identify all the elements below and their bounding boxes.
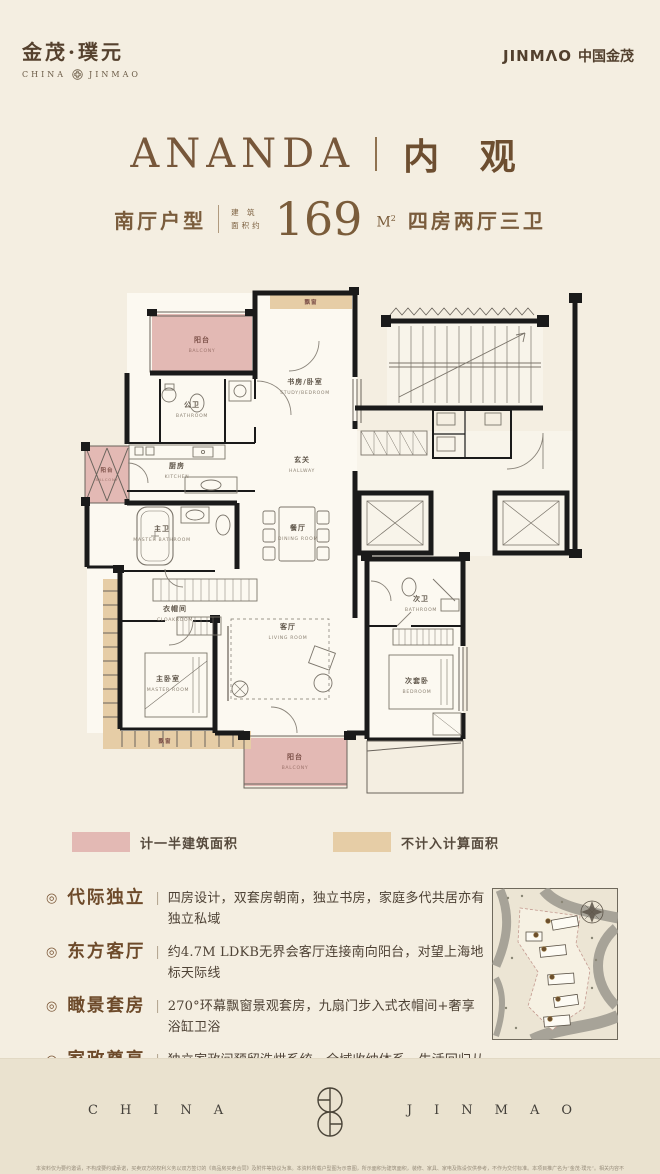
title-divider: [375, 137, 377, 171]
area-unit: M2: [376, 214, 395, 231]
footer-jinmao-text: JINMAO: [407, 1103, 594, 1118]
legend: 计一半建筑面积 不计入计算面积: [72, 832, 499, 852]
page-title-cn: 内 观: [397, 128, 530, 180]
bullseye-bullet-icon: ◎: [46, 942, 57, 963]
brand-right-logotype: JINMΛO: [503, 47, 572, 65]
room-label-en: CLOAKROOM: [157, 617, 193, 623]
area-prefix-line1: 建 筑: [231, 207, 263, 218]
brand-left: 金茂·璞元 CHINA JINMAO: [22, 36, 141, 80]
room-label: 阳台: [287, 752, 303, 761]
brand-left-en-china: CHINA: [22, 70, 66, 79]
balcony-left-area: [85, 446, 129, 503]
room-label-en: BALCONY: [282, 765, 309, 771]
feature-desc: 四房设计，双套房朝南，独立书房，家庭多代共居亦有独立私域: [168, 888, 486, 930]
footer: CHINA JINMAO 本资料仅为要约邀请，不构成要约或承诺，买卖双方的权利义…: [0, 1058, 660, 1174]
jinmao-monogram-icon: [310, 1081, 350, 1147]
feature-row: ◎ 瞰景套房 | 270°环幕飘窗景观套房，九扇门步入式衣帽间+奢享浴缸卫浴: [46, 996, 486, 1038]
room-label: 阳台: [194, 335, 210, 344]
legend-item-half-area: 计一半建筑面积: [72, 832, 238, 852]
room-label: 主卧室: [156, 674, 180, 683]
room-label: 公卫: [184, 401, 200, 409]
legend-label: 不计入计算面积: [401, 833, 499, 852]
room-label-en: LIVING ROOM: [269, 635, 308, 641]
room-label-en: MASTER BATHROOM: [133, 537, 190, 543]
room-label: 餐厅: [289, 523, 306, 532]
room-label-en: HALLWAY: [289, 468, 315, 474]
feature-desc: 约4.7M LDKB无界会客厅连接南向阳台，对望上海地标天际线: [168, 942, 486, 984]
room-label: 飘窗: [158, 737, 171, 745]
feature-row: ◎ 东方客厅 | 约4.7M LDKB无界会客厅连接南向阳台，对望上海地标天际线: [46, 942, 486, 984]
room-label-en: MASTER ROOM: [147, 687, 189, 693]
room-label: 飘窗: [304, 298, 317, 306]
room-label: 衣帽间: [163, 604, 187, 613]
room-label: 书房/卧室: [287, 377, 323, 386]
disclaimer-text: 本资料仅为要约邀请，不构成要约或承诺，买卖双方的权利义务以双方签订的《商品房买卖…: [36, 1165, 624, 1174]
room-label: 次卫: [413, 594, 429, 603]
footer-china-text: CHINA: [88, 1103, 245, 1118]
area-prefix: 建 筑 面积约: [231, 207, 263, 231]
feature-title: 东方客厅: [67, 942, 145, 963]
feature-divider: |: [155, 942, 159, 964]
subtitle-divider: [218, 205, 219, 233]
room-label-en: BALCONY: [95, 477, 118, 482]
area-value: 169: [275, 196, 363, 242]
page-title-en: ANANDA: [130, 131, 355, 177]
area-unit-sup: 2: [391, 214, 396, 223]
legend-label: 计一半建筑面积: [140, 833, 238, 852]
feature-desc: 270°环幕飘窗景观套房，九扇门步入式衣帽间+奢享浴缸卫浴: [168, 996, 486, 1038]
title-row: ANANDA 内 观: [0, 128, 660, 180]
brand-left-en: CHINA JINMAO: [22, 69, 141, 80]
brand-right-cn: 中国金茂: [578, 46, 634, 66]
footer-logos: CHINA JINMAO: [0, 1085, 660, 1147]
room-label-en: DINING ROOM: [278, 536, 318, 542]
feature-title: 瞰景套房: [67, 996, 145, 1017]
site-map: [492, 888, 618, 1044]
area-prefix-line2: 面积约: [231, 220, 263, 231]
room-label-en: BEDROOM: [403, 689, 432, 695]
brand-left-en-jinmao: JINMAO: [89, 70, 141, 79]
room-label-en: BALCONY: [189, 348, 216, 354]
feature-row: ◎ 代际独立 | 四房设计，双套房朝南，独立书房，家庭多代共居亦有独立私域: [46, 888, 486, 930]
room-label-en: BATHROOM: [405, 607, 437, 613]
compass-rose-icon: [581, 901, 603, 923]
subtitle-row: 南厅户型 建 筑 面积约 169 M2 四房两厅三卫: [0, 196, 660, 242]
balcony-bottom-area: [244, 738, 347, 786]
floor-plan-svg: 阳台 BALCONY 飘窗 书房/卧室 STUDY/BEDROOM 公卫 BAT…: [65, 281, 595, 826]
room-label: 阳台: [100, 466, 113, 474]
feature-divider: |: [155, 996, 159, 1018]
brand-emblem-icon: [72, 69, 83, 80]
bullseye-bullet-icon: ◎: [46, 888, 57, 909]
floor-plan: 阳台 BALCONY 飘窗 书房/卧室 STUDY/BEDROOM 公卫 BAT…: [65, 281, 595, 830]
bullseye-bullet-icon: ◎: [46, 996, 57, 1017]
brand-left-cn: 金茂·璞元: [22, 36, 141, 65]
room-label-en: STUDY/BEDROOM: [280, 390, 330, 396]
layout-name: 南厅户型: [114, 205, 206, 234]
feature-divider: |: [155, 888, 159, 910]
legend-swatch-tan: [333, 832, 391, 852]
room-label: 厨房: [169, 461, 185, 470]
legend-item-excluded-area: 不计入计算面积: [333, 832, 499, 852]
room-count: 四房两厅三卫: [408, 205, 546, 234]
poster: 金茂·璞元 CHINA JINMAO JINMΛO 中国金茂 ANANDA 内 …: [0, 0, 660, 1174]
room-label: 玄关: [294, 455, 310, 464]
room-label: 次套卧: [405, 676, 429, 685]
legend-swatch-pink: [72, 832, 130, 852]
brand-right: JINMΛO 中国金茂: [503, 46, 634, 66]
room-label: 主卫: [154, 524, 170, 533]
room-label: 客厅: [279, 622, 296, 631]
room-label-en: KITCHEN: [165, 474, 190, 480]
room-label-en: BATHROOM: [176, 413, 208, 419]
site-map-svg: [492, 888, 618, 1040]
feature-title: 代际独立: [67, 888, 145, 909]
area-unit-m: M: [376, 214, 390, 230]
